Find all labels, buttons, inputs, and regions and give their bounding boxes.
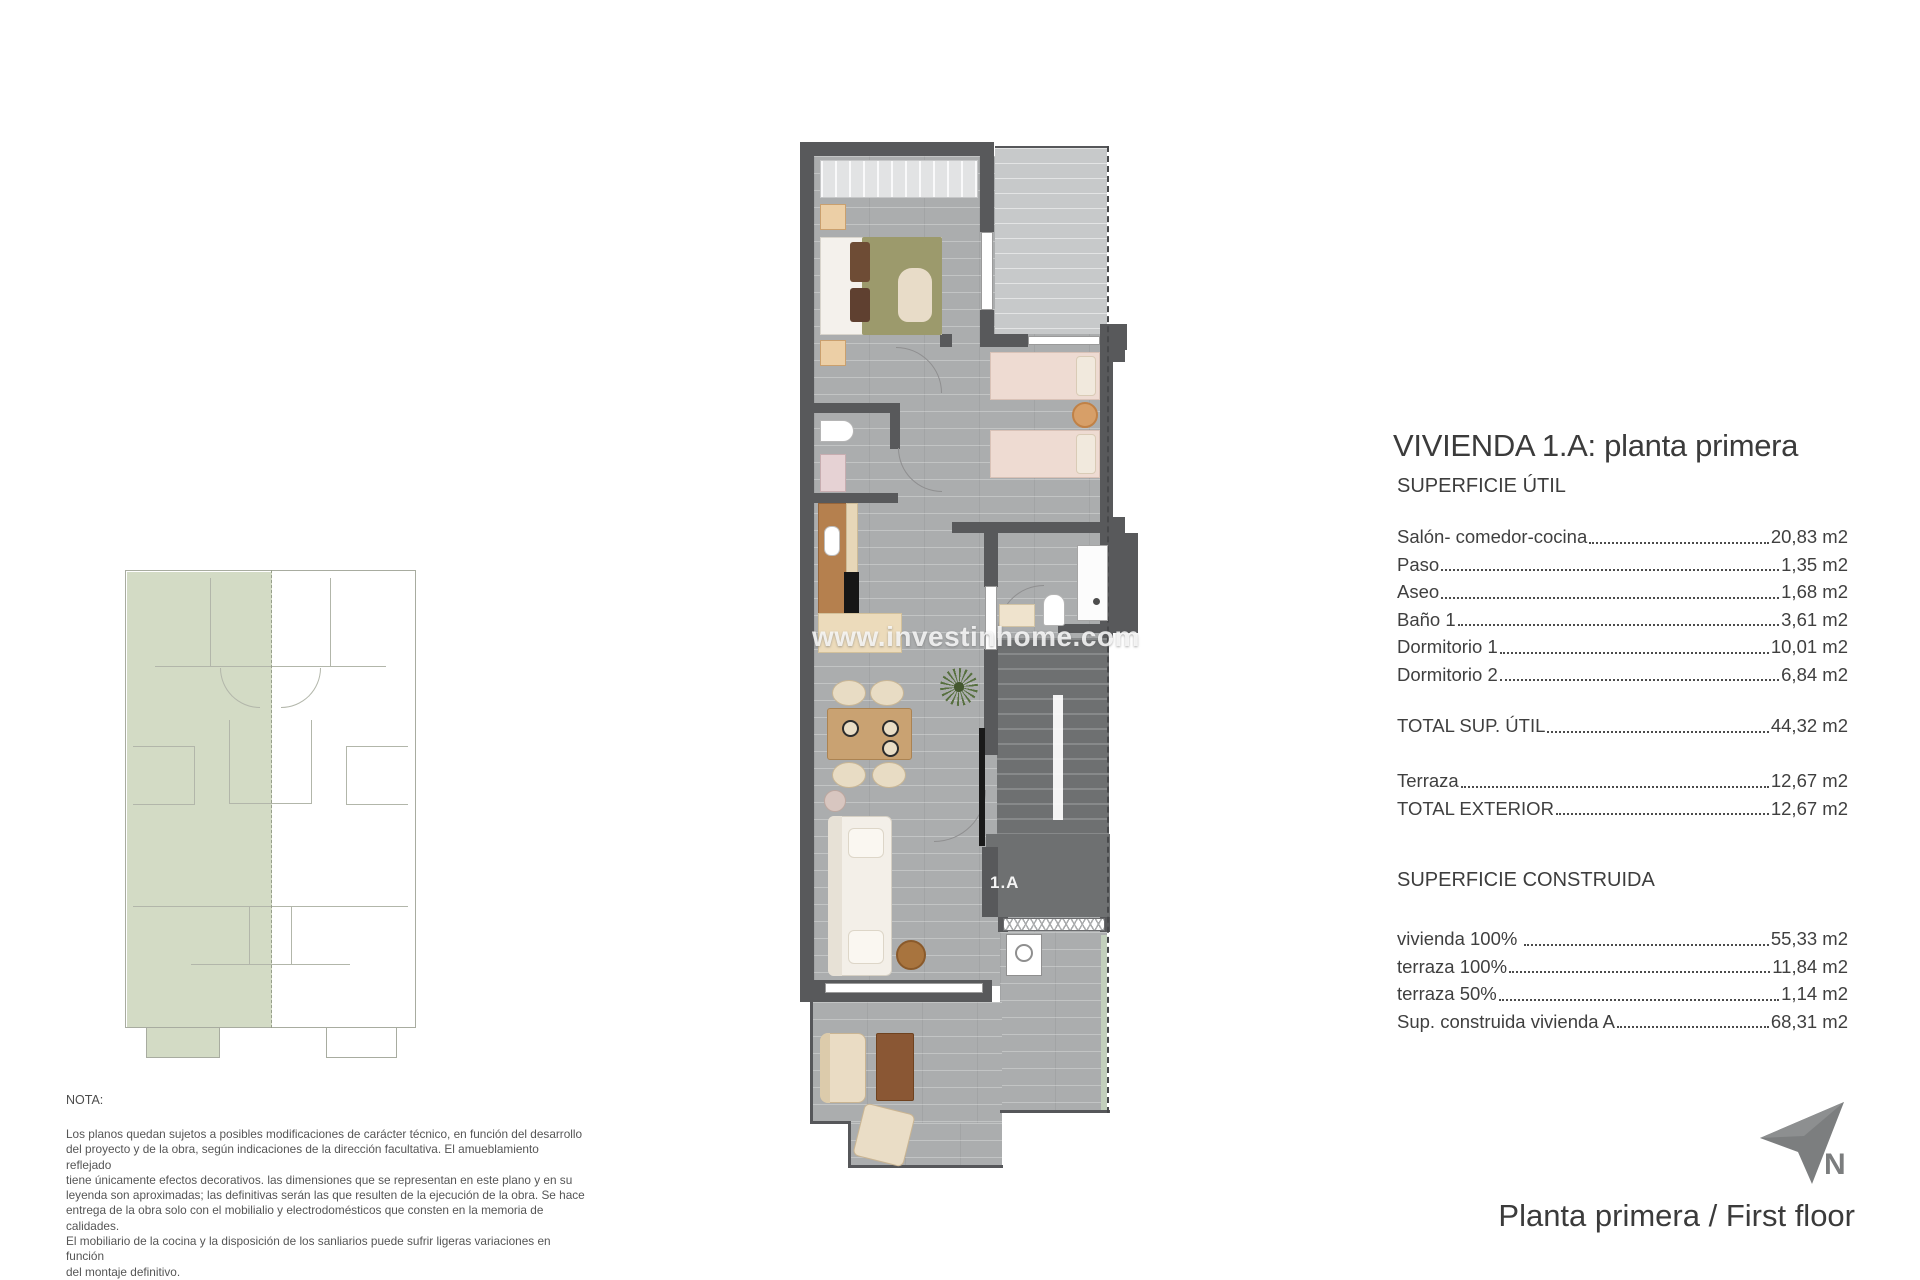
plan-line <box>191 964 271 965</box>
plan-line <box>291 906 292 964</box>
plan-line <box>210 578 211 666</box>
window-opening <box>1028 336 1100 345</box>
area-row-value: 12,67 m2 <box>1771 771 1848 791</box>
area-row: Paso 1,35 m2 <box>1397 548 1848 576</box>
kitchen-sink <box>824 526 840 556</box>
plan-line <box>249 906 250 964</box>
louver-window <box>1003 918 1105 931</box>
leader-dots <box>1589 542 1769 544</box>
nota-block: NOTA: Los planos quedan sujetos a posibl… <box>66 1093 586 1280</box>
upper-terrace-floor <box>995 148 1107 334</box>
sofa-cushion <box>848 828 884 858</box>
key-plan-tab-right <box>326 1028 397 1058</box>
area-row-label: Terraza <box>1397 771 1459 791</box>
plan-line <box>270 964 350 965</box>
outdoor-table <box>876 1033 914 1101</box>
area-row-value: 12,67 m2 <box>1771 799 1848 819</box>
area-row-label: TOTAL SUP. ÚTIL <box>1397 716 1545 736</box>
dining-chair <box>832 680 866 706</box>
leader-dots <box>1499 999 1779 1001</box>
terrace-edge <box>810 1002 813 1124</box>
floor-title: Planta primera / First floor <box>1390 1198 1855 1234</box>
area-row: Sup. construida vivienda A 68,31 m2 <box>1397 1005 1848 1033</box>
window-opening <box>981 232 993 310</box>
wall-segment <box>984 649 998 755</box>
area-row-label: terraza 100% <box>1397 957 1507 977</box>
area-row-value: 55,33 m2 <box>1771 929 1848 949</box>
unit-label: 1.A <box>990 873 1019 893</box>
plan-line <box>229 803 271 804</box>
wall-segment <box>980 142 994 232</box>
main-floor-plan: 1.A <box>800 140 1145 1185</box>
wall-segment <box>980 334 1028 347</box>
leader-dots <box>1617 1026 1769 1028</box>
pouf <box>1072 402 1098 428</box>
sofa-back <box>828 816 842 976</box>
plan-line <box>330 578 331 666</box>
area-row-label: Baño 1 <box>1397 610 1456 630</box>
area-row-label: TOTAL EXTERIOR <box>1397 799 1554 819</box>
bed-pillow <box>1076 434 1096 474</box>
plan-line <box>229 720 230 804</box>
area-row: Dormitorio 2 6,84 m2 <box>1397 658 1848 686</box>
area-row-label: Salón- comedor-cocina <box>1397 527 1587 547</box>
tv <box>979 728 985 846</box>
area-row: TOTAL SUP. ÚTIL 44,32 m2 <box>1397 709 1848 737</box>
leader-dots <box>1547 731 1768 733</box>
toilet <box>820 420 854 442</box>
total-util-row: TOTAL SUP. ÚTIL 44,32 m2 <box>1397 709 1848 737</box>
wall-segment <box>890 403 900 449</box>
wall-segment <box>800 142 994 156</box>
terrace-edge <box>810 1121 851 1124</box>
washbasin <box>820 454 846 492</box>
place-setting <box>882 720 899 737</box>
area-row: Aseo 1,68 m2 <box>1397 575 1848 603</box>
wall-segment <box>814 493 898 503</box>
terrace-edge <box>848 1121 851 1168</box>
leader-dots <box>1524 944 1768 946</box>
area-summary-panel: VIVIENDA 1.A: planta primera SUPERFICIE … <box>1393 428 1851 464</box>
area-row-label: Dormitorio 2 <box>1397 665 1498 685</box>
section-heading-superficie-construida: SUPERFICIE CONSTRUIDA <box>1397 869 1655 892</box>
area-row: terraza 50% 1,14 m2 <box>1397 977 1848 1005</box>
plan-line <box>194 746 195 804</box>
area-row-value: 1,14 m2 <box>1781 984 1848 1004</box>
bed-pillow <box>850 288 870 322</box>
north-indicator: N <box>1752 1096 1862 1191</box>
area-row-label: vivienda 100% <box>1397 929 1522 949</box>
plan-line <box>133 906 271 907</box>
bed-throw <box>898 268 932 322</box>
key-plan-divider <box>271 570 272 1028</box>
area-row-value: 10,01 m2 <box>1771 637 1848 657</box>
plan-line <box>155 666 271 667</box>
bed-pillow <box>850 242 870 282</box>
leader-dots <box>1500 679 1779 681</box>
area-row-label: Dormitorio 1 <box>1397 637 1498 657</box>
area-row: Dormitorio 1 10,01 m2 <box>1397 630 1848 658</box>
nota-heading: NOTA: <box>66 1093 586 1107</box>
wall-segment <box>1105 533 1138 633</box>
area-row-value: 1,68 m2 <box>1781 582 1848 602</box>
kitchen-cabinet <box>846 503 858 573</box>
shower-drain <box>1093 598 1100 605</box>
watermark: www.investinhome.com <box>812 621 1140 653</box>
nota-body: Los planos quedan sujetos a posibles mod… <box>66 1127 586 1280</box>
north-label: N <box>1824 1148 1846 1182</box>
section-heading-superficie-util: SUPERFICIE ÚTIL <box>1397 475 1566 498</box>
plan-line <box>346 746 347 804</box>
plan-line <box>270 803 312 804</box>
place-setting <box>842 720 859 737</box>
area-row-value: 3,61 m2 <box>1781 610 1848 630</box>
dining-chair <box>870 680 904 706</box>
plan-line <box>346 804 408 805</box>
area-row-value: 11,84 m2 <box>1772 957 1848 977</box>
area-row-label: terraza 50% <box>1397 984 1497 1004</box>
dining-table <box>827 708 912 760</box>
area-row: terraza 100% 11,84 m2 <box>1397 950 1848 978</box>
plan-line <box>133 746 195 747</box>
pouf <box>824 790 846 812</box>
plan-line <box>270 666 386 667</box>
wall-segment <box>940 334 952 347</box>
area-row: Baño 1 3,61 m2 <box>1397 603 1848 631</box>
terrace-edge <box>1000 1110 1110 1113</box>
bed-pillow <box>1076 356 1096 396</box>
wall-segment <box>984 533 998 587</box>
area-row: vivienda 100% 55,33 m2 <box>1397 922 1848 950</box>
superficie-construida-rows: vivienda 100% 55,33 m2 terraza 100% 11,8… <box>1397 922 1848 1032</box>
wall-segment <box>814 403 900 413</box>
sofa-cushion <box>848 930 884 964</box>
key-plan-tab-left <box>146 1028 220 1058</box>
area-row-label: Aseo <box>1397 582 1439 602</box>
leader-dots <box>1556 813 1769 815</box>
wardrobe <box>820 160 978 198</box>
wall-segment <box>800 142 814 988</box>
outdoor-sofa-back <box>820 1033 830 1103</box>
washing-machine-door <box>1015 944 1033 962</box>
nightstand <box>820 204 846 230</box>
leader-dots <box>1441 569 1779 571</box>
area-row: Salón- comedor-cocina 20,83 m2 <box>1397 520 1848 548</box>
area-row-value: 1,35 m2 <box>1781 555 1848 575</box>
plan-line <box>311 720 312 804</box>
area-row-value: 44,32 m2 <box>1771 716 1848 736</box>
plan-line <box>346 746 408 747</box>
dining-chair <box>832 762 866 788</box>
area-row-value: 68,31 m2 <box>1771 1012 1848 1032</box>
window-opening <box>825 983 983 993</box>
area-row-value: 20,83 m2 <box>1771 527 1848 547</box>
area-row: TOTAL EXTERIOR 12,67 m2 <box>1397 792 1848 820</box>
shower <box>1077 545 1108 621</box>
wall-segment <box>952 522 1104 533</box>
area-row-value: 6,84 m2 <box>1781 665 1848 685</box>
nightstand <box>820 340 846 366</box>
leader-dots <box>1441 597 1779 599</box>
area-row: Terraza 12,67 m2 <box>1397 764 1848 792</box>
plant-icon <box>940 668 978 706</box>
side-table <box>896 940 926 970</box>
terrace-edge <box>850 1165 1003 1168</box>
kitchen-appliance <box>844 572 859 613</box>
place-setting <box>882 740 899 757</box>
superficie-util-rows: Salón- comedor-cocina 20,83 m2 Paso 1,35… <box>1397 520 1848 685</box>
area-row-label: Paso <box>1397 555 1439 575</box>
leader-dots <box>1500 652 1769 654</box>
leader-dots <box>1458 624 1780 626</box>
key-plan <box>125 570 418 1062</box>
leader-dots <box>1509 971 1770 973</box>
plan-title: VIVIENDA 1.A: planta primera <box>1393 428 1851 464</box>
plan-line <box>133 804 195 805</box>
stair-stripe <box>1053 695 1063 820</box>
area-row-label: Sup. construida vivienda A <box>1397 1012 1615 1032</box>
leader-dots <box>1461 786 1769 788</box>
wall-segment <box>1113 342 1125 362</box>
exterior-rows: Terraza 12,67 m2 TOTAL EXTERIOR 12,67 m2 <box>1397 764 1848 819</box>
dining-chair <box>872 762 906 788</box>
